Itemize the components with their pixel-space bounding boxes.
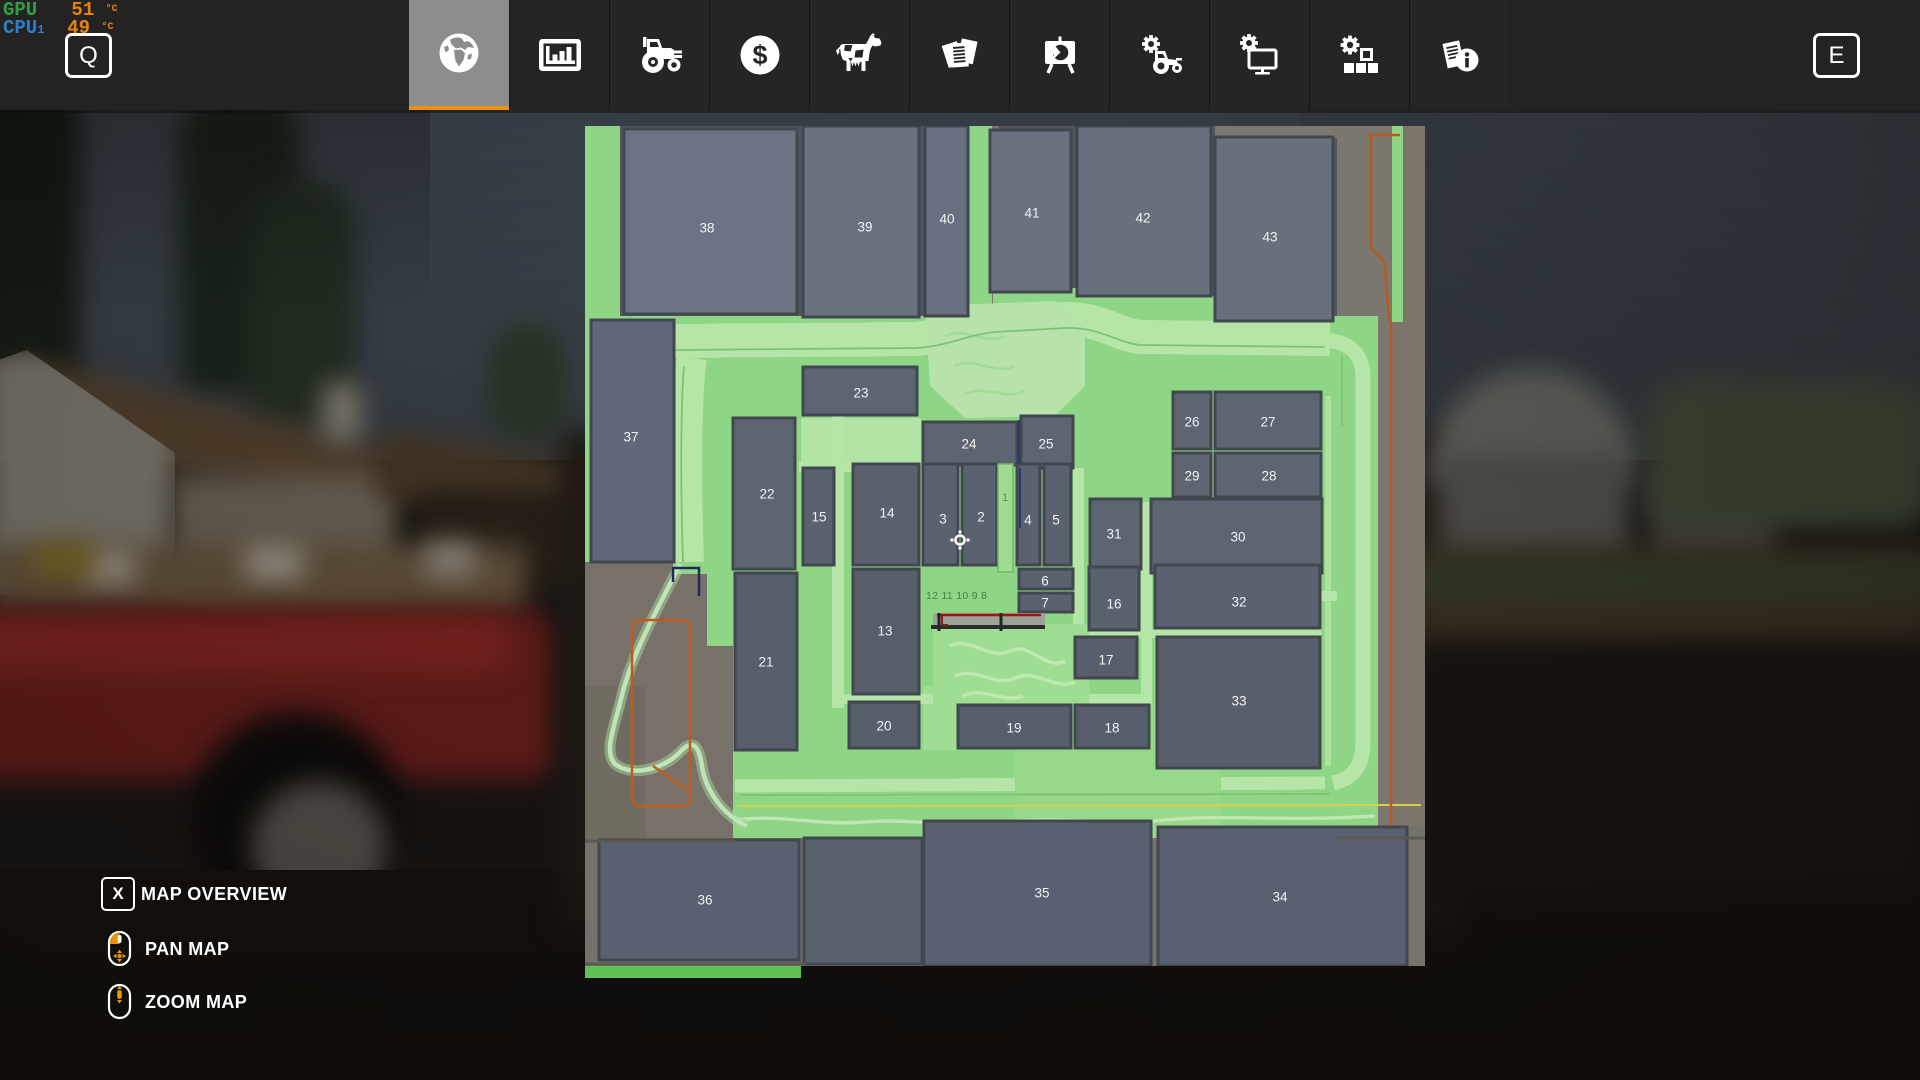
svg-text:15: 15 [811,510,826,525]
svg-text:19: 19 [1006,721,1021,736]
svg-text:35: 35 [1034,886,1049,901]
svg-text:24: 24 [961,437,977,452]
svg-text:34: 34 [1272,890,1288,905]
svg-text:39: 39 [857,220,872,235]
svg-text:21: 21 [758,655,773,670]
svg-text:42: 42 [1135,211,1150,226]
svg-text:41: 41 [1024,206,1039,221]
svg-text:4: 4 [1024,513,1032,528]
svg-text:43: 43 [1262,230,1277,245]
svg-text:33: 33 [1231,694,1246,709]
svg-text:32: 32 [1231,595,1246,610]
svg-text:40: 40 [939,212,954,227]
svg-text:23: 23 [853,386,868,401]
svg-text:37: 37 [623,430,638,445]
svg-text:26: 26 [1184,415,1199,430]
svg-text:20: 20 [876,719,891,734]
svg-text:36: 36 [697,893,712,908]
svg-text:2: 2 [977,510,985,525]
svg-text:28: 28 [1261,469,1276,484]
svg-text:27: 27 [1260,415,1275,430]
svg-text:16: 16 [1106,597,1121,612]
svg-text:22: 22 [759,487,774,502]
svg-text:3: 3 [939,512,947,527]
svg-text:38: 38 [699,221,714,236]
svg-text:14: 14 [879,506,895,521]
svg-text:31: 31 [1106,527,1121,542]
svg-text:12 11 10 9 8: 12 11 10 9 8 [926,590,987,602]
svg-text:30: 30 [1230,530,1245,545]
svg-text:5: 5 [1052,513,1060,528]
svg-text:6: 6 [1041,574,1049,589]
svg-text:1: 1 [1002,492,1008,504]
svg-text:13: 13 [877,624,892,639]
svg-text:18: 18 [1104,721,1119,736]
svg-text:$: $ [752,40,767,70]
svg-text:29: 29 [1184,469,1199,484]
svg-text:25: 25 [1038,437,1053,452]
svg-text:7: 7 [1041,596,1049,611]
svg-text:17: 17 [1098,653,1113,668]
